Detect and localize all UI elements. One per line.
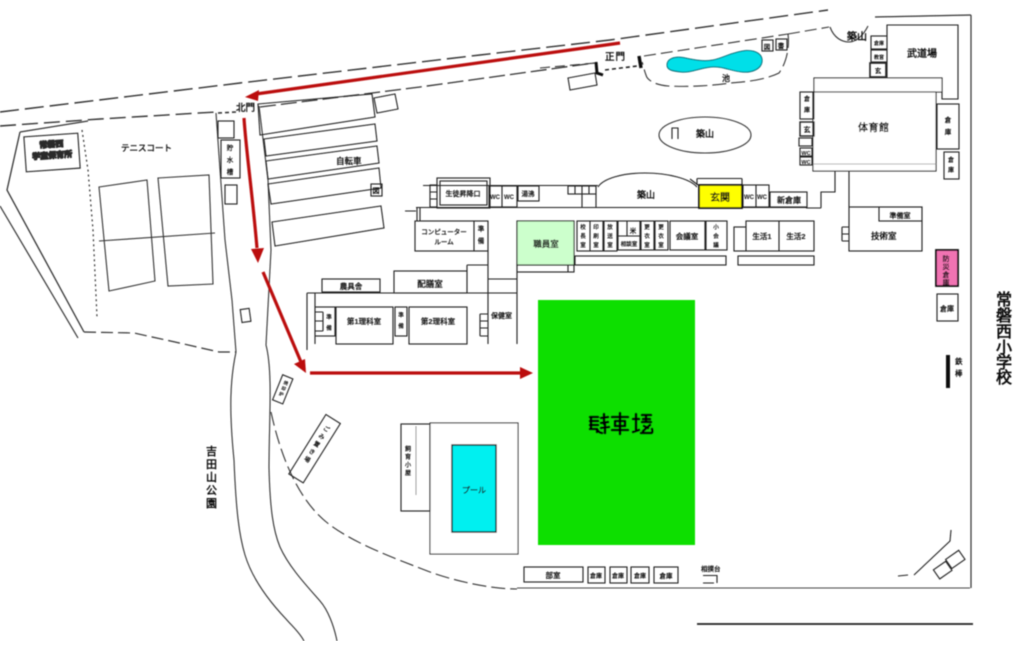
- svg-text:議: 議: [713, 241, 719, 249]
- svg-text:第2理科室: 第2理科室: [421, 316, 456, 326]
- svg-text:書: 書: [778, 41, 785, 50]
- svg-text:倉: 倉: [947, 156, 955, 164]
- svg-text:場: 場: [303, 455, 312, 465]
- svg-text:保健室: 保健室: [490, 311, 512, 320]
- svg-text:西: 西: [996, 323, 1012, 341]
- svg-text:部室: 部室: [546, 570, 561, 580]
- svg-text:プール: プール: [462, 485, 486, 495]
- svg-text:コンピューター: コンピューター: [421, 227, 467, 236]
- svg-text:飼: 飼: [404, 445, 411, 453]
- svg-text:常磐西: 常磐西: [39, 138, 64, 150]
- svg-text:備: 備: [326, 324, 332, 332]
- svg-text:庫: 庫: [945, 127, 952, 136]
- svg-text:倉庫: 倉庫: [939, 304, 954, 313]
- svg-text:図: 図: [764, 42, 771, 51]
- svg-text:倉庫: 倉庫: [659, 571, 674, 580]
- svg-text:準備室: 準備室: [890, 211, 911, 220]
- svg-text:倉: 倉: [942, 270, 951, 279]
- svg-text:防: 防: [943, 254, 950, 263]
- svg-text:園: 園: [206, 497, 217, 510]
- svg-text:小: 小: [404, 461, 411, 469]
- svg-text:配膳室: 配膳室: [417, 279, 443, 289]
- svg-text:槽: 槽: [227, 167, 234, 176]
- svg-text:図: 図: [373, 186, 380, 195]
- svg-text:WC: WC: [801, 160, 810, 166]
- svg-text:湯沸: 湯沸: [522, 189, 536, 198]
- svg-text:庫: 庫: [804, 106, 810, 114]
- svg-text:水: 水: [227, 155, 234, 164]
- svg-text:池: 池: [722, 73, 730, 83]
- svg-text:会: 会: [713, 232, 719, 240]
- svg-text:教官: 教官: [873, 54, 884, 61]
- svg-text:み: み: [317, 432, 326, 441]
- svg-text:倉庫: 倉庫: [873, 40, 884, 47]
- svg-text:備: 備: [478, 236, 485, 245]
- svg-text:学童保育所: 学童保育所: [32, 149, 73, 162]
- svg-text:準: 準: [478, 224, 485, 233]
- svg-text:校: 校: [996, 368, 1013, 387]
- svg-text:貯: 貯: [227, 143, 234, 152]
- svg-text:送: 送: [606, 232, 613, 240]
- svg-text:鉄: 鉄: [955, 356, 963, 366]
- svg-text:室: 室: [658, 241, 664, 249]
- svg-text:米: 米: [630, 226, 637, 235]
- svg-text:田: 田: [206, 458, 217, 471]
- svg-text:WC: WC: [757, 195, 768, 201]
- svg-text:WC: WC: [744, 195, 755, 201]
- svg-text:更: 更: [644, 223, 650, 231]
- svg-text:準: 準: [326, 313, 332, 321]
- svg-text:倉: 倉: [944, 115, 952, 124]
- svg-text:倉: 倉: [803, 95, 811, 103]
- svg-text:屋: 屋: [405, 469, 411, 477]
- svg-text:生活2: 生活2: [786, 231, 805, 241]
- svg-text:室: 室: [644, 241, 650, 249]
- svg-text:築山: 築山: [636, 189, 655, 200]
- svg-text:衣: 衣: [658, 232, 664, 240]
- svg-text:生活1: 生活1: [752, 231, 771, 241]
- svg-text:室: 室: [580, 241, 586, 249]
- svg-text:倉庫: 倉庫: [589, 572, 602, 580]
- svg-text:災: 災: [942, 263, 951, 271]
- svg-text:相撲台: 相撲台: [701, 564, 721, 573]
- svg-text:棒: 棒: [955, 368, 963, 378]
- svg-text:準: 準: [398, 311, 404, 319]
- svg-text:体育館: 体育館: [858, 121, 890, 134]
- svg-text:小: 小: [713, 223, 719, 231]
- svg-text:玄: 玄: [875, 66, 882, 75]
- svg-text:置: 置: [312, 439, 321, 449]
- svg-text:倉庫: 倉庫: [611, 572, 624, 580]
- svg-text:北門: 北門: [236, 102, 255, 114]
- svg-text:農具舎: 農具舎: [340, 281, 363, 291]
- svg-text:備: 備: [398, 322, 404, 330]
- svg-text:玄: 玄: [804, 125, 811, 134]
- svg-text:山: 山: [206, 470, 217, 484]
- svg-text:玄関: 玄関: [710, 191, 730, 204]
- svg-text:室: 室: [607, 241, 613, 249]
- svg-text:WC: WC: [490, 195, 501, 201]
- svg-text:校: 校: [580, 223, 586, 231]
- svg-text:テニスコート: テニスコート: [121, 143, 172, 153]
- svg-text:倉庫: 倉庫: [633, 572, 646, 580]
- svg-text:第1理科室: 第1理科室: [347, 316, 382, 326]
- svg-text:正門: 正門: [605, 52, 626, 63]
- svg-text:WC: WC: [504, 195, 515, 201]
- svg-text:放: 放: [606, 223, 613, 231]
- svg-text:ご: ご: [322, 424, 331, 434]
- svg-text:長: 長: [580, 232, 586, 240]
- svg-text:ルーム: ルーム: [434, 238, 454, 246]
- svg-text:武道場: 武道場: [907, 47, 937, 60]
- svg-text:WC: WC: [801, 151, 810, 157]
- svg-text:相談室: 相談室: [621, 240, 638, 248]
- svg-text:生徒昇降口: 生徒昇降口: [446, 189, 481, 198]
- svg-text:技術室: 技術室: [871, 231, 897, 241]
- svg-text:吉: 吉: [206, 444, 217, 458]
- svg-text:庫: 庫: [943, 278, 950, 287]
- svg-text:き: き: [307, 447, 316, 457]
- svg-text:会議室: 会議室: [676, 231, 699, 241]
- svg-text:磐: 磐: [995, 306, 1013, 325]
- svg-text:刷: 刷: [593, 232, 599, 240]
- svg-text:更: 更: [658, 223, 664, 231]
- svg-text:育: 育: [405, 453, 411, 461]
- svg-text:公: 公: [206, 484, 217, 497]
- svg-text:庫: 庫: [948, 166, 954, 174]
- svg-text:印: 印: [593, 223, 599, 231]
- svg-text:自転車: 自転車: [336, 156, 362, 166]
- svg-text:築山: 築山: [695, 128, 714, 139]
- svg-text:衣: 衣: [644, 232, 650, 240]
- svg-text:室: 室: [593, 241, 599, 249]
- svg-text:新倉庫: 新倉庫: [777, 195, 801, 205]
- svg-text:職員室: 職員室: [533, 239, 559, 249]
- svg-text:常: 常: [996, 290, 1012, 309]
- svg-text:築山: 築山: [846, 30, 867, 43]
